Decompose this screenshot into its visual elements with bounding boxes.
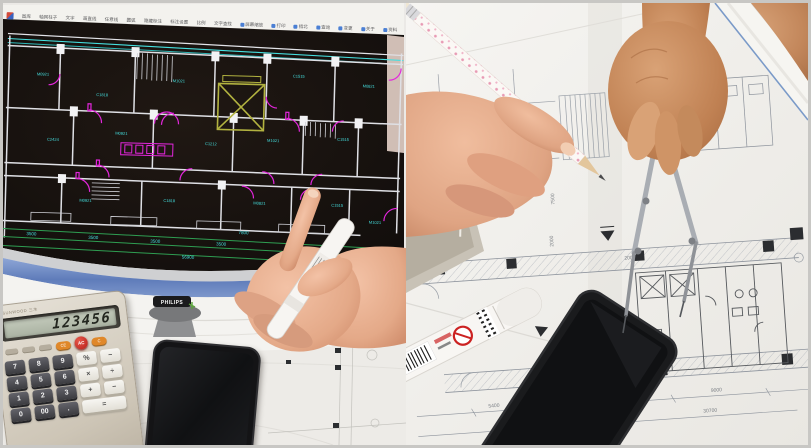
menu-item: 查询 [316,24,330,31]
memory-key [39,344,53,351]
op-key: − [100,348,121,363]
right-photo-blueprint-drafting: 5400 9000 30700 200 2000 7500 [406,3,808,445]
toolbar-icon [271,23,275,27]
svg-text:3500: 3500 [26,231,37,236]
menu-item: 标注设置 [170,19,188,26]
digit-key: 2 [32,388,53,403]
menu-item: 轴网柱子 [39,14,57,21]
toolbar-icon [361,27,365,31]
toolbar-icon [294,24,298,28]
svg-text:M1021: M1021 [267,138,280,143]
desk-calculator: SUNWOOD 三木 123456 CE AC C 7 8 9 % − [3,290,146,445]
op-key: − [104,380,125,395]
svg-text:C1818: C1818 [96,92,109,97]
op-key: ÷ [102,364,123,379]
menu-item: 文字 [65,15,74,21]
svg-text:C1515: C1515 [293,73,306,78]
digit-key: 1 [8,391,29,406]
menu-item: 屏幕缩放 [240,21,263,28]
menu-item: 圆弧 [126,17,135,23]
memory-key [22,346,36,353]
menu-item: 隐藏标注 [144,18,162,25]
digit-key: 00 [34,404,55,419]
digit-key: 4 [6,375,27,390]
menu-item: 变更 [338,25,352,32]
toolbar-icon [338,26,342,30]
menu-item: 打印 [271,22,285,29]
digit-key: 6 [54,369,75,384]
op-key: % [76,351,97,366]
svg-text:M0921: M0921 [115,131,128,136]
memory-key [5,348,19,355]
svg-text:7800: 7800 [238,230,249,235]
ce-key: CE [55,340,71,350]
c-key: C [91,336,107,346]
menu-item: 文字查找 [214,20,232,27]
svg-text:M0921: M0921 [79,198,92,203]
svg-text:56900: 56900 [182,254,195,259]
svg-text:30700: 30700 [703,408,718,415]
left-photo-cad-workstation: PHILIPS [3,3,406,445]
right-photo-art: 5400 9000 30700 200 2000 7500 [406,3,808,445]
svg-text:M0921: M0921 [37,71,50,76]
phone-screen [152,346,255,445]
svg-text:M1021: M1021 [369,220,382,225]
svg-text:5400: 5400 [488,403,500,410]
digit-key: 5 [30,372,51,387]
equals-key: = [82,395,127,413]
svg-text:3500: 3500 [216,241,227,246]
menu-item: 图库 [22,13,31,19]
svg-text:M0821: M0821 [253,200,266,205]
svg-text:C1818: C1818 [163,198,176,203]
toolbar-icon [316,25,320,29]
menu-item: 关于 [361,26,375,33]
svg-text:3500: 3500 [150,239,161,244]
digit-key: 7 [4,359,25,374]
menu-item: 比例 [196,20,205,26]
menu-item: 画直线 [83,15,97,21]
toolbar-icon [240,22,244,26]
svg-text:2000: 2000 [549,235,555,247]
op-key: × [78,367,99,382]
svg-text:7500: 7500 [550,193,556,205]
toolbar-icon [383,27,387,31]
digit-key: 3 [56,385,77,400]
cad-app-logo-icon [6,12,13,19]
digit-key: 0 [10,407,31,422]
menu-item: 任意线 [105,16,119,22]
svg-text:M1021: M1021 [173,78,186,83]
op-key: + [80,382,101,397]
svg-text:C1212: C1212 [205,141,218,146]
digit-key: 8 [28,357,49,372]
menu-item: 指北 [294,23,308,30]
svg-text:C2424: C2424 [47,137,60,142]
monitor-right-bezel [387,35,404,153]
digit-key: . [58,401,79,416]
philips-logo-text: PHILIPS [161,300,184,306]
svg-text:9000: 9000 [711,387,723,394]
menu-item: 资料 [383,26,397,33]
calculator-display-value: 123456 [52,309,112,332]
svg-text:C1515: C1515 [331,203,344,208]
svg-text:M0821: M0821 [363,83,376,88]
svg-text:C1515: C1515 [337,137,350,142]
digit-key: 9 [52,354,73,369]
svg-text:3500: 3500 [88,235,99,240]
smartphone-left [144,339,262,445]
photo-collage-frame: PHILIPS [0,0,811,448]
ac-key: AC [74,336,88,350]
